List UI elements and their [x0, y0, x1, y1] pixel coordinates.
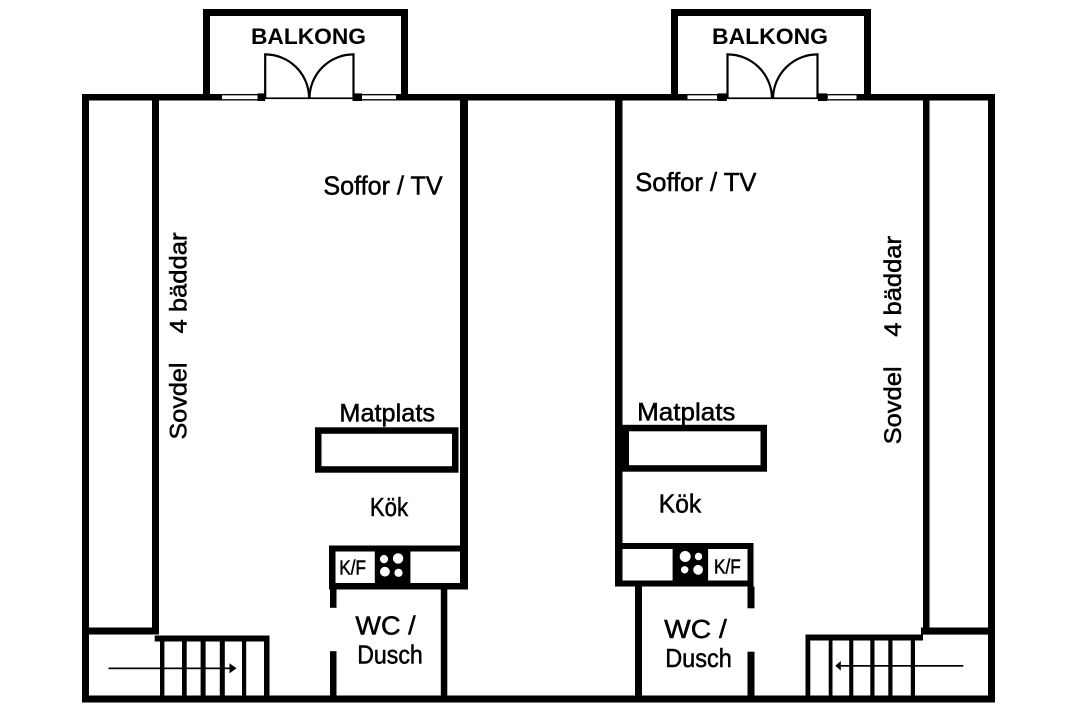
svg-text:Dusch: Dusch — [357, 640, 423, 670]
svg-text:4 bäddar: 4 bäddar — [166, 232, 193, 333]
svg-text:K/F: K/F — [339, 557, 366, 579]
svg-text:Matplats: Matplats — [637, 398, 735, 426]
svg-text:Kök: Kök — [370, 492, 409, 522]
svg-text:WC /: WC / — [355, 610, 416, 640]
svg-text:Dusch: Dusch — [665, 643, 732, 673]
svg-text:BALKONG: BALKONG — [251, 24, 366, 49]
svg-text:Soffor / TV: Soffor / TV — [635, 167, 757, 197]
svg-text:WC /: WC / — [664, 614, 728, 644]
svg-text:4 bäddar: 4 bäddar — [880, 236, 907, 337]
svg-text:K/F: K/F — [714, 557, 741, 579]
svg-text:BALKONG: BALKONG — [712, 24, 828, 49]
svg-text:Sovdel: Sovdel — [166, 363, 193, 440]
svg-text:Matplats: Matplats — [339, 399, 435, 427]
svg-text:Sovdel: Sovdel — [880, 366, 907, 444]
svg-text:Soffor / TV: Soffor / TV — [323, 170, 443, 200]
svg-text:Kök: Kök — [659, 488, 702, 518]
